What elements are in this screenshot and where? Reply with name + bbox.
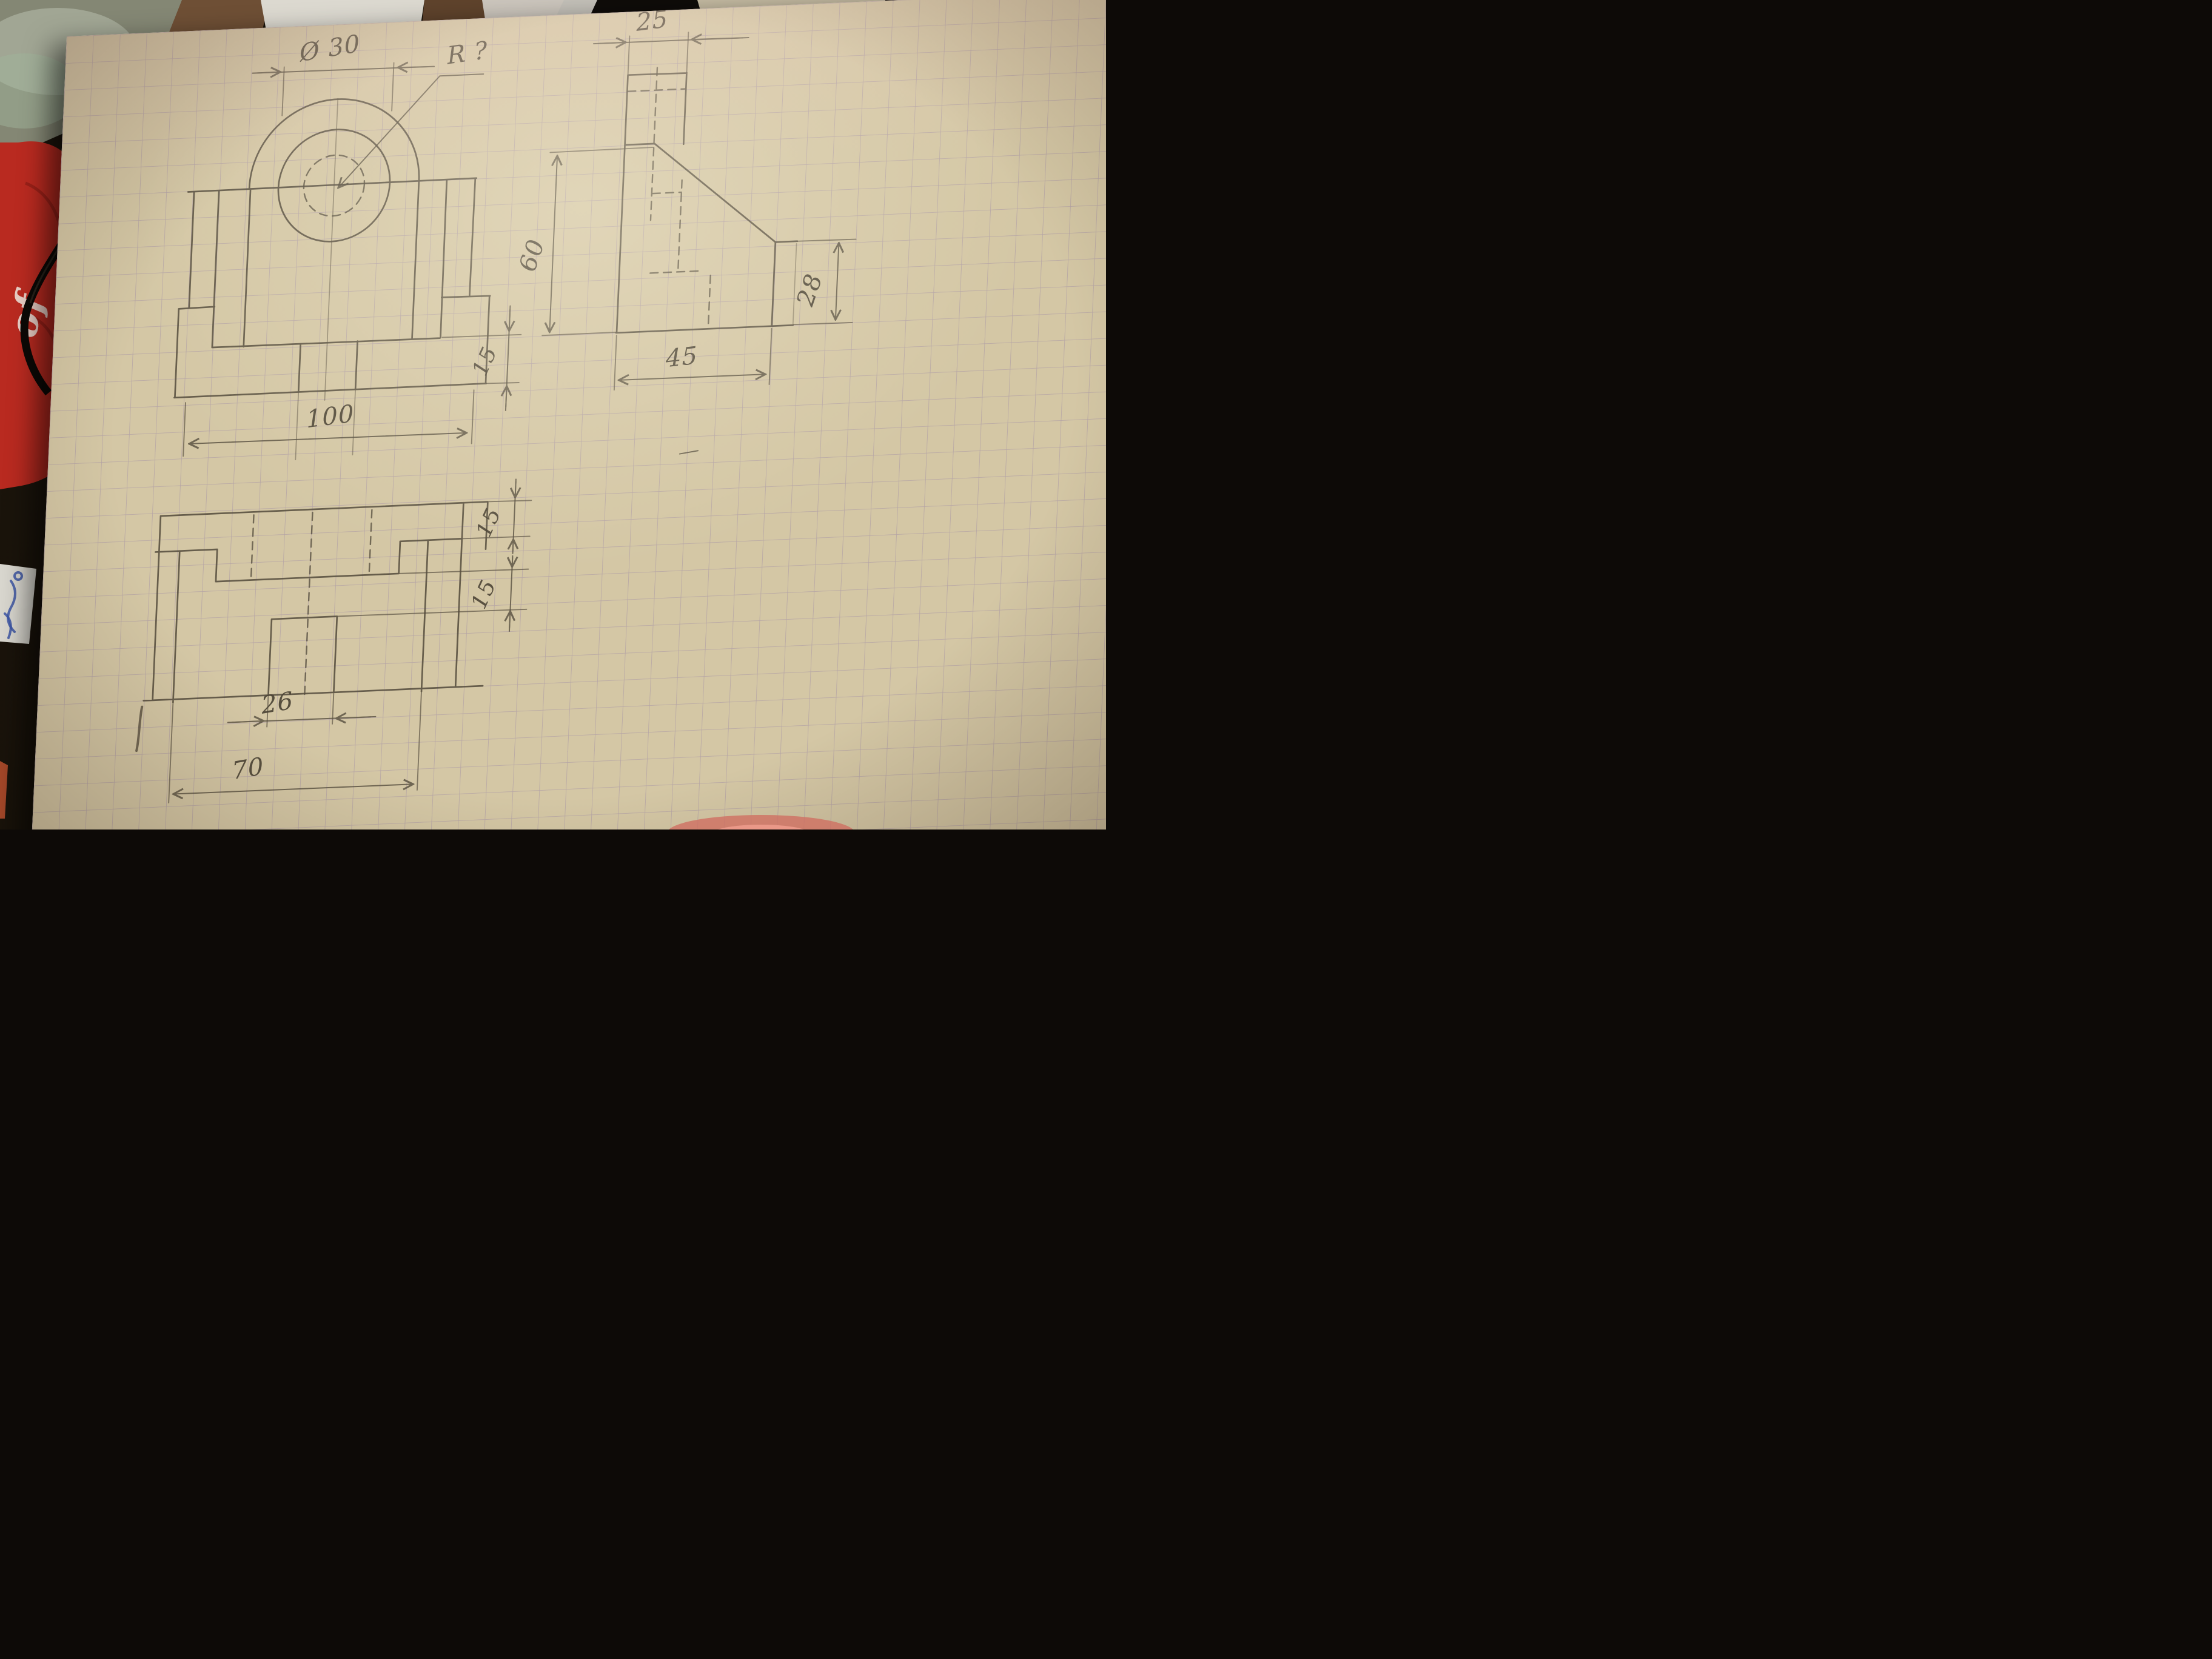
photo-scene: of: [0, 0, 1106, 829]
graph-paper-sheet: Ø 30 R ? 100 15 25 60 28 45 15 15 26 70: [28, 0, 1106, 829]
white-note-paper: [0, 564, 36, 644]
sketch-canvas: Ø 30 R ? 100 15 25 60 28 45 15 15 26 70: [28, 0, 1106, 829]
orange-sliver: [0, 761, 8, 819]
photo-vignette: [28, 0, 1106, 829]
